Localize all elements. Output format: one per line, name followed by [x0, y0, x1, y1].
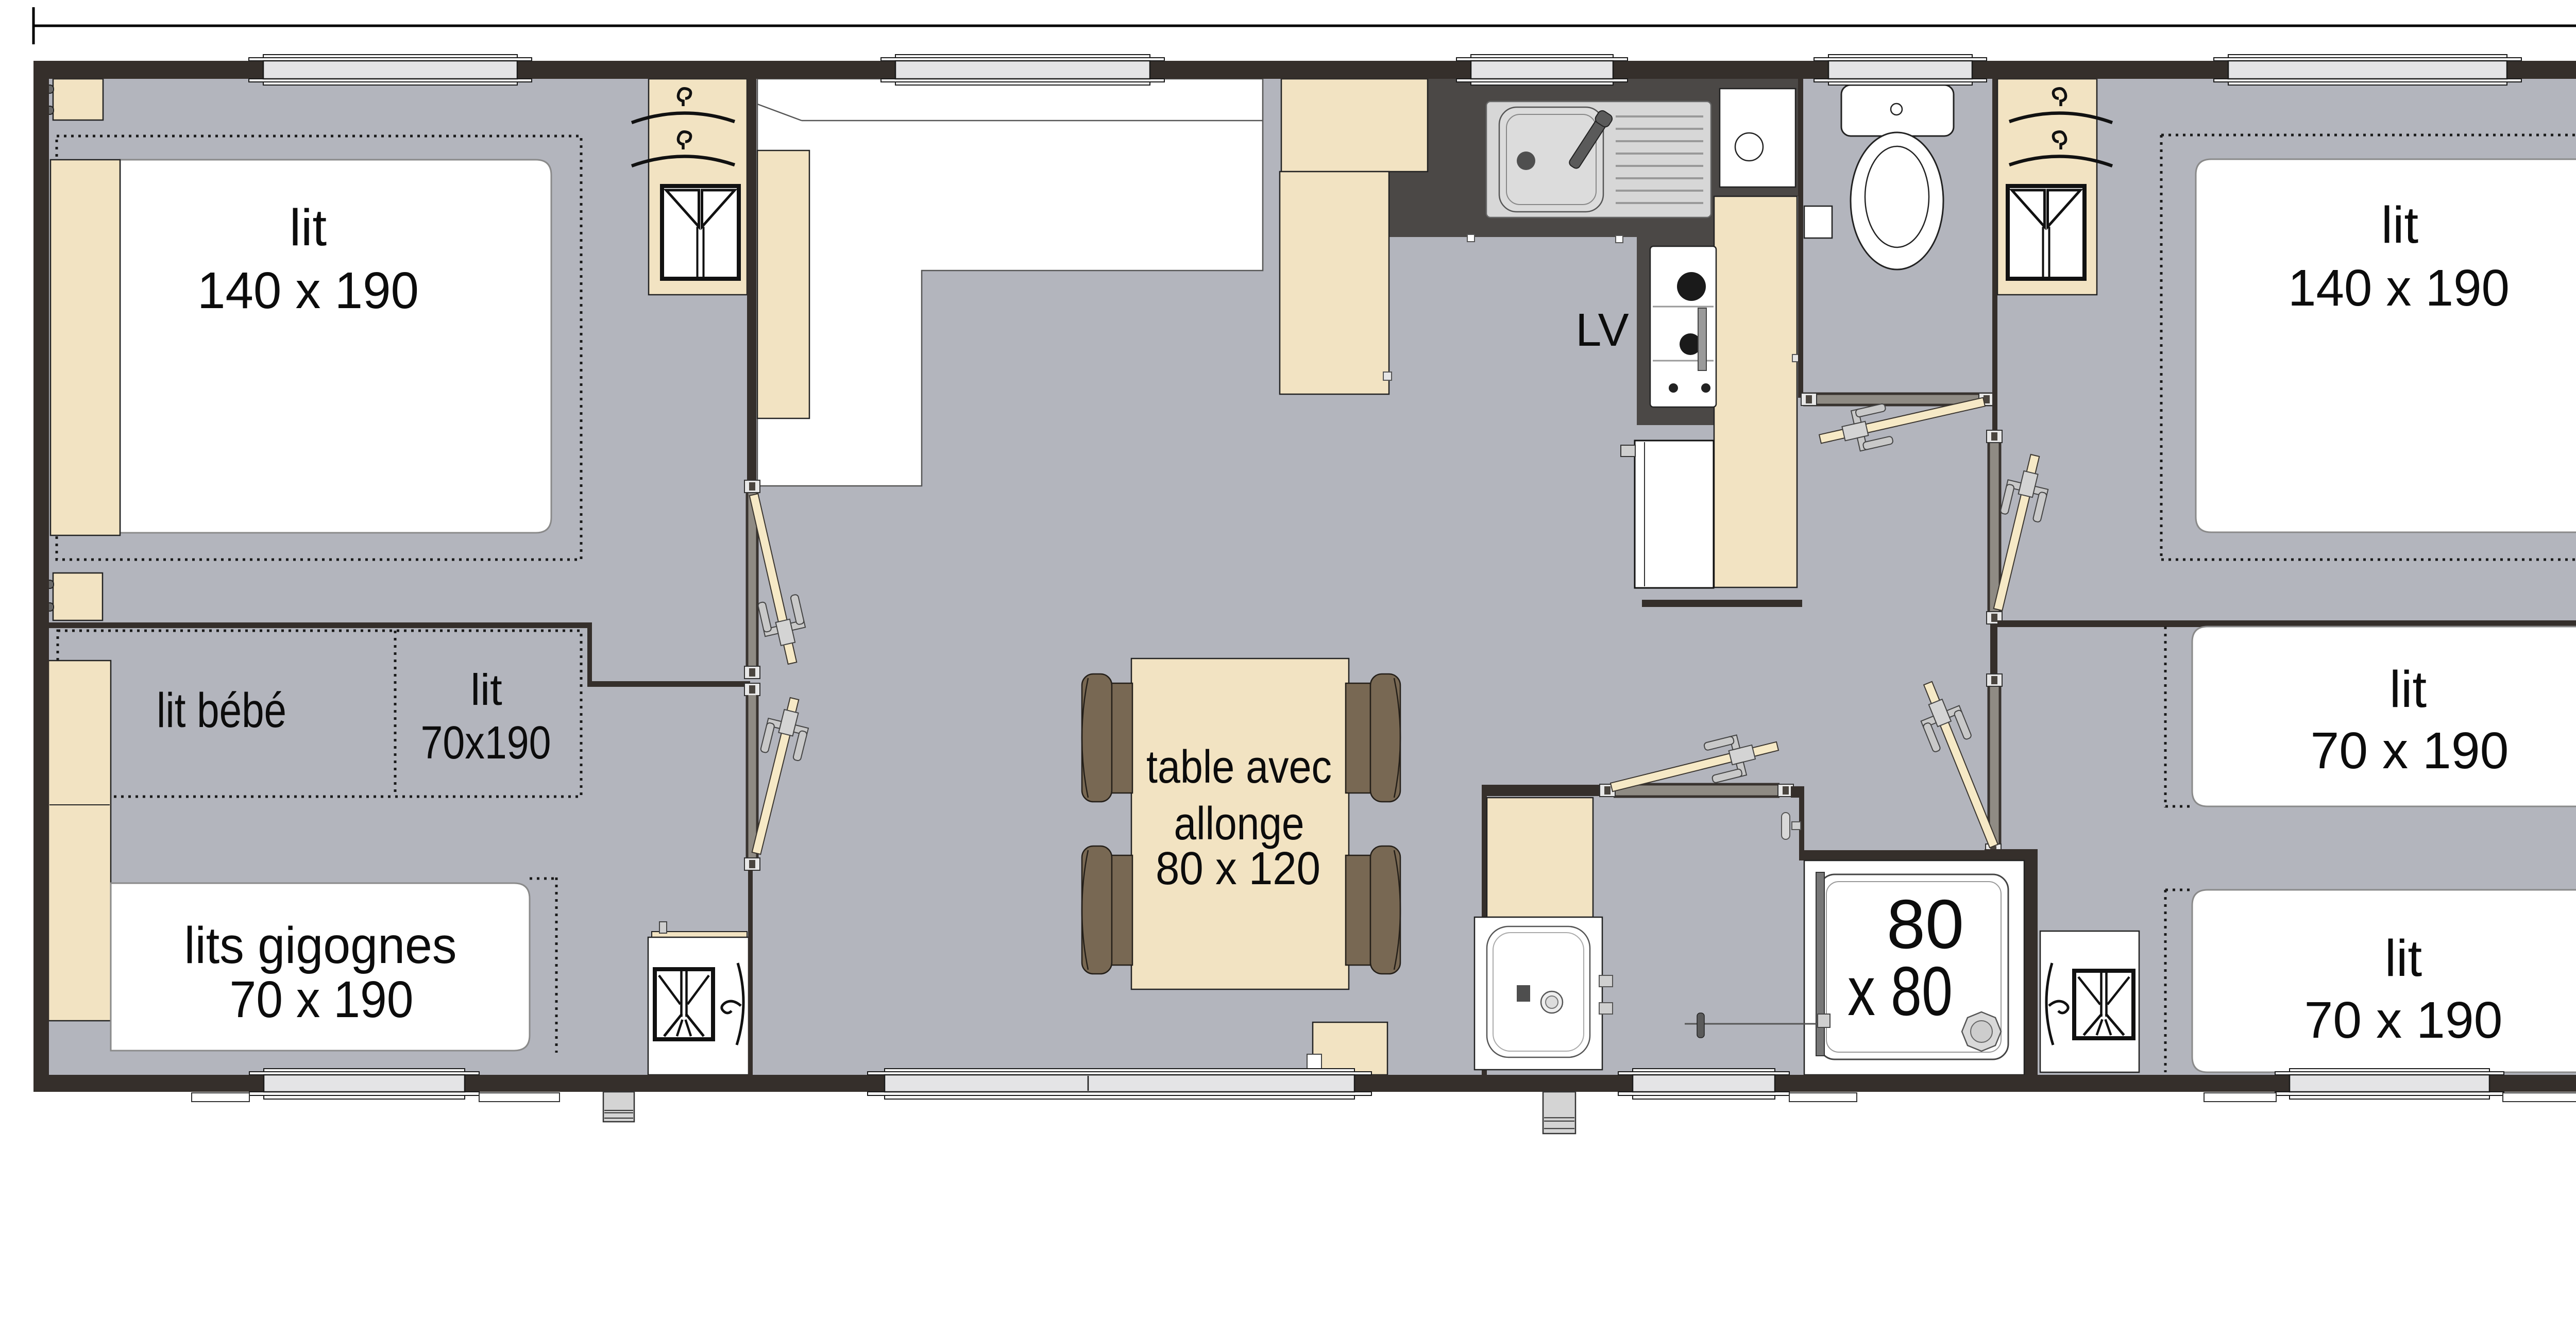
svg-text:LV: LV: [1575, 305, 1629, 356]
svg-text:lit: lit: [2381, 196, 2418, 254]
svg-text:70 x 190: 70 x 190: [230, 971, 414, 1028]
svg-text:70 x 190: 70 x 190: [2311, 722, 2509, 780]
svg-text:lit bébé: lit bébé: [157, 683, 286, 738]
svg-text:table avec: table avec: [1146, 741, 1332, 793]
svg-text:70x190: 70x190: [421, 717, 551, 769]
svg-text:lit: lit: [470, 666, 502, 715]
svg-text:80 x 120: 80 x 120: [1156, 843, 1320, 894]
svg-text:lit: lit: [290, 199, 327, 257]
svg-text:x 80: x 80: [1848, 952, 1953, 1030]
svg-text:lit: lit: [2389, 661, 2427, 718]
svg-text:140 x 190: 140 x 190: [2288, 259, 2510, 317]
svg-text:allonge: allonge: [1174, 798, 1304, 850]
svg-text:80: 80: [1887, 885, 1964, 963]
svg-text:140 x 190: 140 x 190: [197, 262, 419, 319]
svg-text:lits gigognes: lits gigognes: [184, 917, 457, 974]
svg-text:70 x 190: 70 x 190: [2304, 991, 2503, 1049]
svg-text:lit: lit: [2385, 930, 2422, 987]
